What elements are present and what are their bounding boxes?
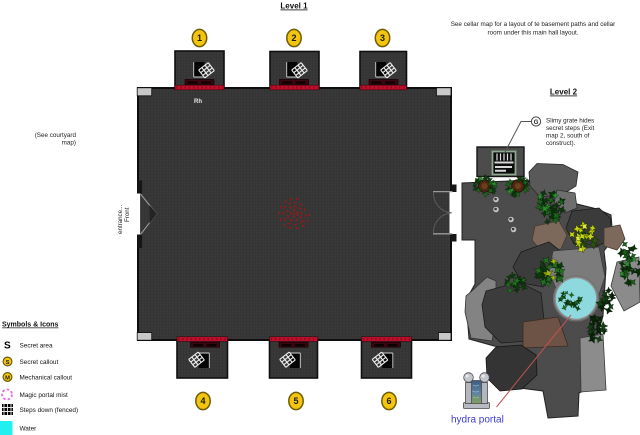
svg-text:Mechanical callout: Mechanical callout xyxy=(20,375,73,382)
svg-text:S: S xyxy=(4,341,11,352)
svg-text:map 2, south of: map 2, south of xyxy=(546,133,590,140)
svg-text:map): map) xyxy=(62,140,76,147)
svg-text:Secret callout: Secret callout xyxy=(20,359,59,366)
svg-text:Water: Water xyxy=(20,426,38,433)
svg-text:2: 2 xyxy=(291,33,296,43)
svg-text:S: S xyxy=(6,360,10,366)
svg-text:6: 6 xyxy=(386,396,391,406)
svg-text:hydra portal: hydra portal xyxy=(451,415,504,426)
svg-text:5: 5 xyxy=(293,396,298,406)
svg-text:Slimy grate hides: Slimy grate hides xyxy=(546,118,594,125)
svg-text:entrance...: entrance... xyxy=(117,204,124,234)
svg-text:construct).: construct). xyxy=(546,140,576,147)
svg-text:Level 1: Level 1 xyxy=(280,2,308,11)
svg-text:1: 1 xyxy=(197,33,202,43)
svg-text:room under this main hall layo: room under this main hall layout. xyxy=(487,30,578,37)
svg-text:4: 4 xyxy=(200,396,205,406)
svg-text:Symbols & Icons: Symbols & Icons xyxy=(2,322,59,329)
svg-text:(See courtyard: (See courtyard xyxy=(35,132,77,139)
svg-text:Rh: Rh xyxy=(194,99,202,105)
svg-text:secret steps (Exit: secret steps (Exit xyxy=(546,125,595,132)
svg-text:See cellar map for a layout of: See cellar map for a layout of te baseme… xyxy=(451,21,616,28)
svg-text:Level 2: Level 2 xyxy=(550,88,578,97)
svg-text:Steps down (fenced): Steps down (fenced) xyxy=(20,407,79,414)
svg-text:Front: Front xyxy=(124,207,131,222)
svg-text:G: G xyxy=(534,119,539,126)
svg-text:3: 3 xyxy=(380,33,385,43)
svg-text:M: M xyxy=(5,375,10,381)
svg-text:Secret area: Secret area xyxy=(20,343,53,350)
svg-text:Magic portal mist: Magic portal mist xyxy=(20,392,69,399)
